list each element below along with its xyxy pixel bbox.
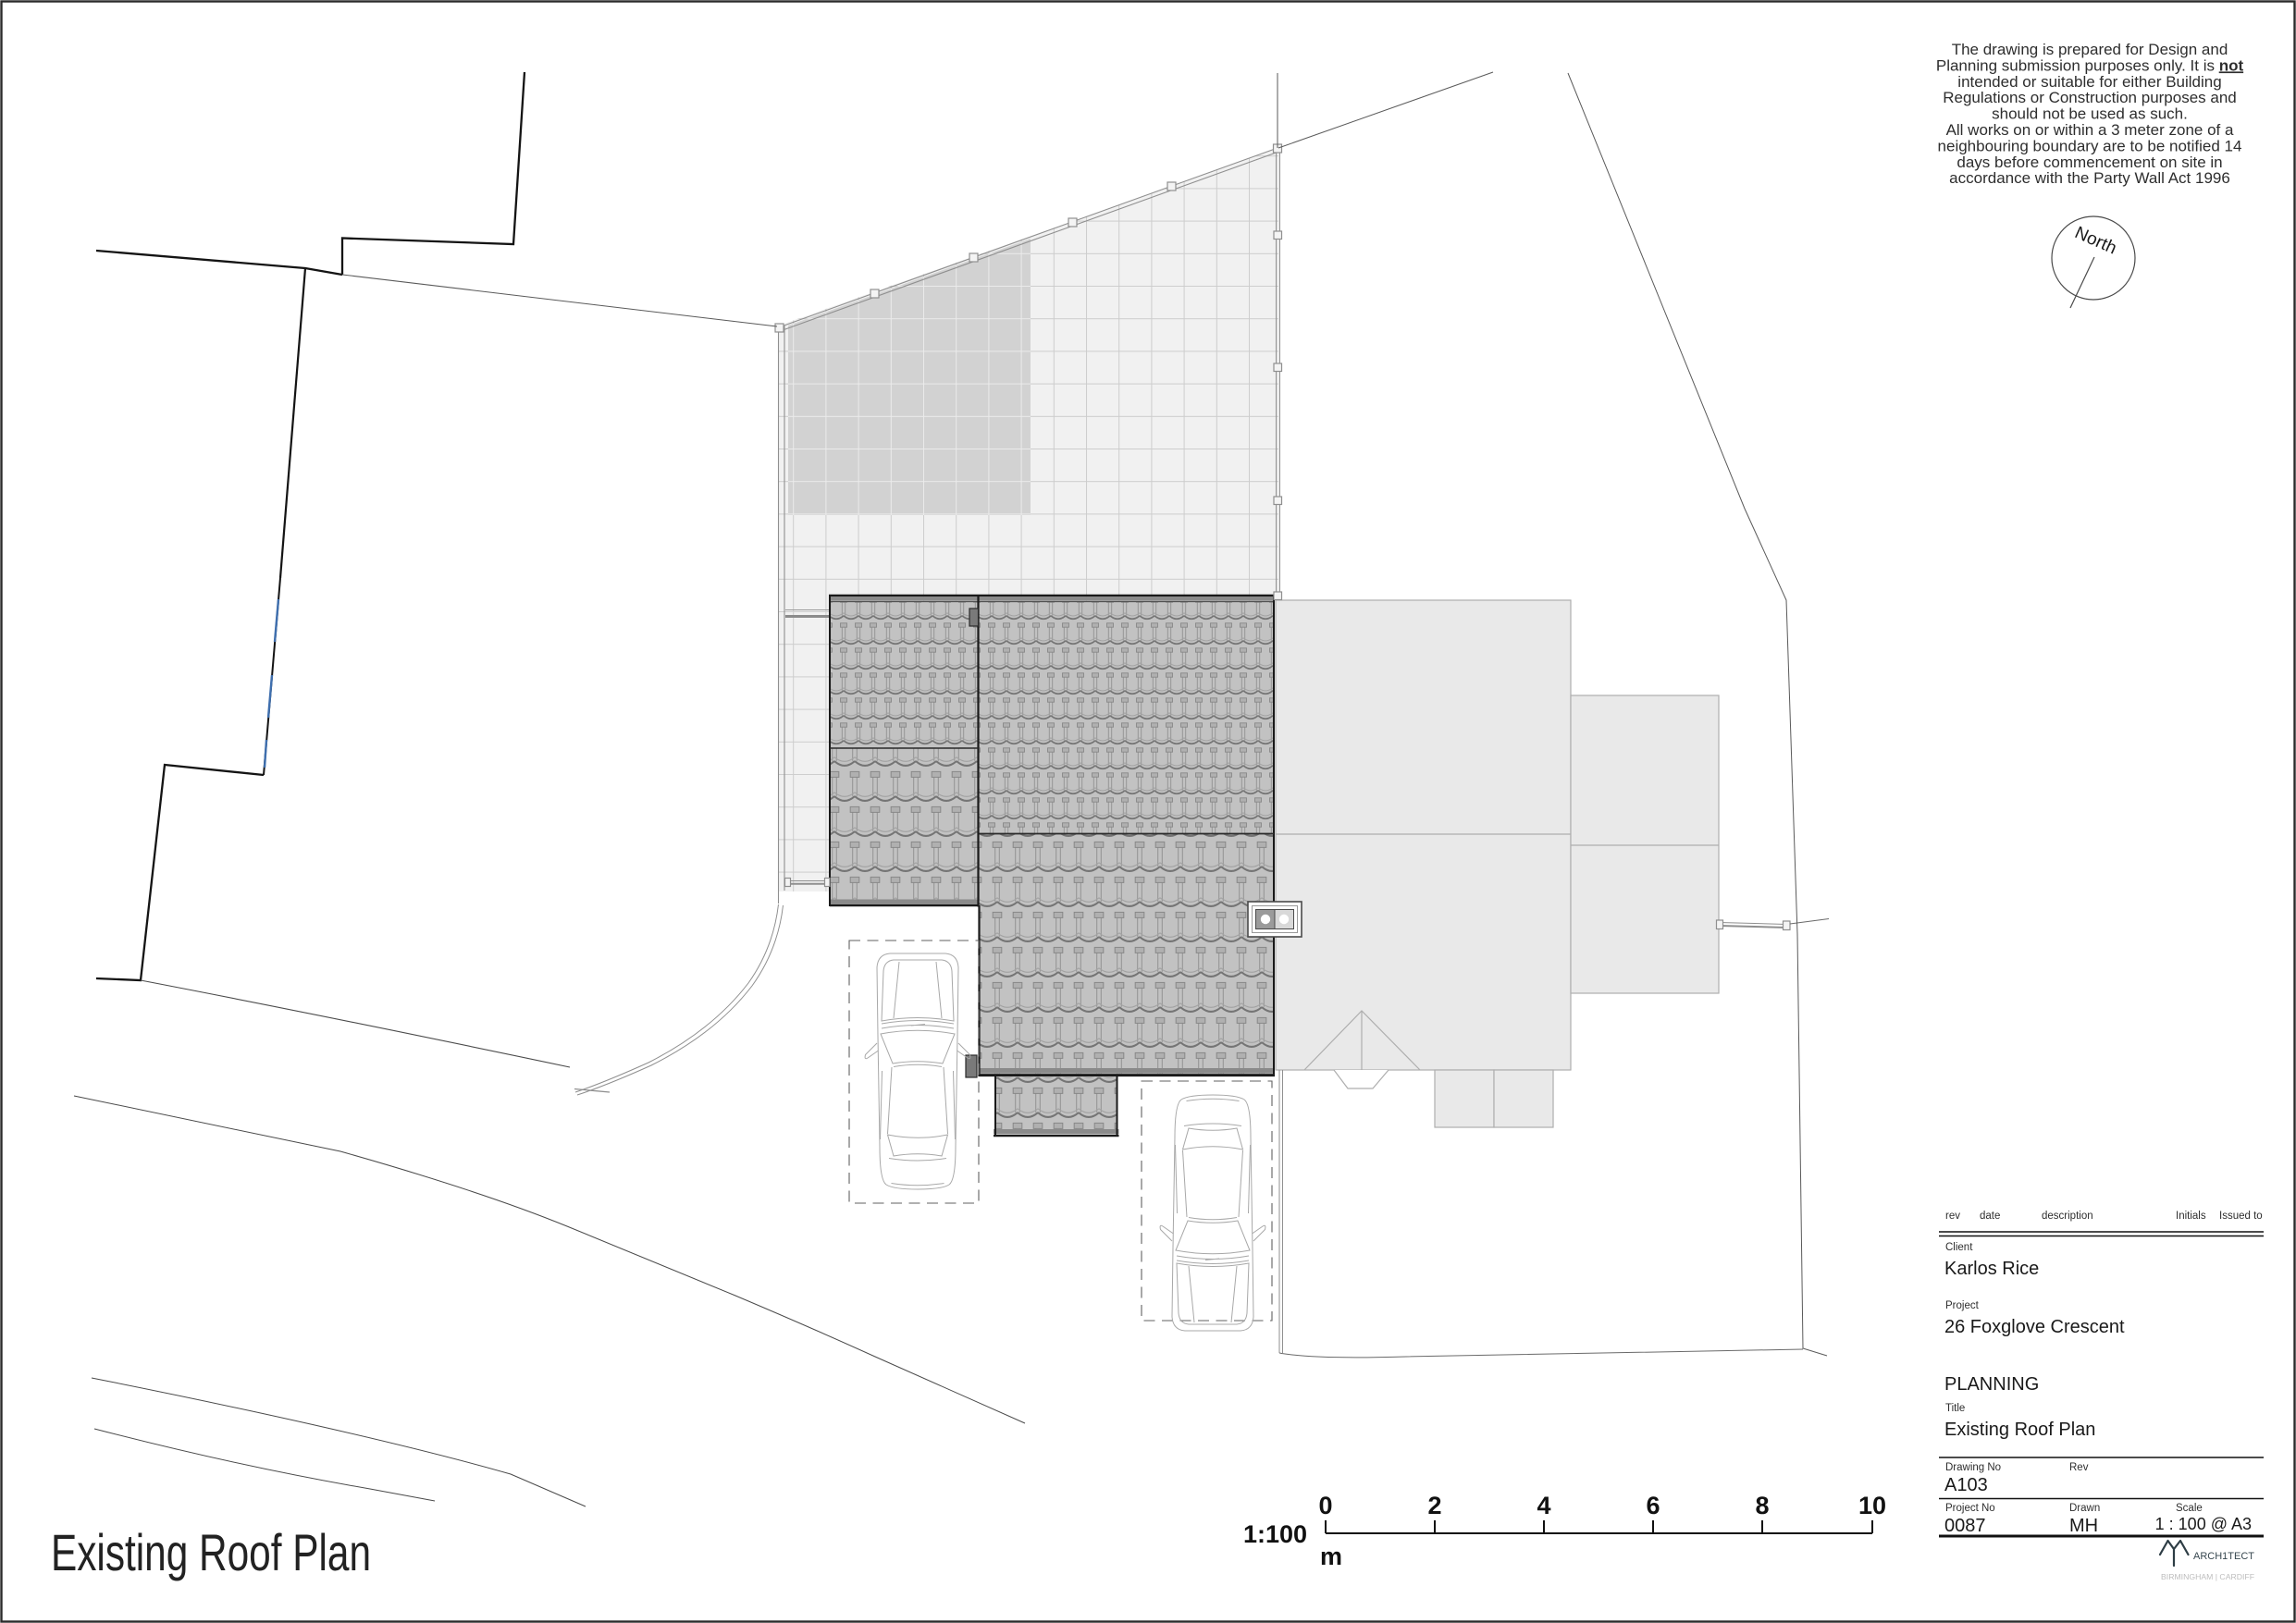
svg-text:Title: Title [1945,1403,1965,1414]
svg-text:Project: Project [1945,1300,1980,1311]
svg-text:ARCH1TECT: ARCH1TECT [2193,1551,2254,1562]
svg-text:BIRMINGHAM | CARDIFF: BIRMINGHAM | CARDIFF [2161,1573,2254,1581]
svg-text:Client: Client [1945,1242,1973,1253]
svg-text:Rev: Rev [2069,1462,2089,1473]
svg-text:m: m [1320,1543,1342,1570]
svg-text:1:100: 1:100 [1243,1520,1307,1548]
svg-text:Existing Roof Plan: Existing Roof Plan [51,1523,371,1581]
svg-text:days before commencement on si: days before commencement on site in [1957,154,2222,171]
svg-text:All works on or within a 3 met: All works on or within a 3 meter zone of… [1946,121,2234,139]
svg-text:6: 6 [1646,1492,1660,1519]
svg-text:Drawn: Drawn [2069,1503,2100,1514]
svg-text:MH: MH [2069,1516,2098,1536]
svg-text:0: 0 [1318,1492,1332,1519]
svg-text:Regulations or Construction pu: Regulations or Construction purposes and [1943,89,2237,106]
svg-text:date: date [1980,1211,2000,1222]
svg-text:Initials: Initials [2176,1211,2206,1222]
svg-text:Planning submission purposes o: Planning submission purposes only. It is… [1936,56,2244,74]
svg-text:Issued to: Issued to [2219,1211,2263,1222]
svg-text:10: 10 [1858,1492,1886,1519]
svg-text:neighbouring boundary are to b: neighbouring boundary are to be notified… [1938,137,2242,154]
svg-text:should not be used as such.: should not be used as such. [1992,105,2188,123]
svg-text:8: 8 [1755,1492,1769,1519]
svg-text:0087: 0087 [1944,1516,1986,1536]
svg-text:rev: rev [1945,1211,1960,1222]
svg-text:Karlos Rice: Karlos Rice [1944,1259,2039,1279]
svg-text:accordance with the Party Wall: accordance with the Party Wall Act 1996 [1949,169,2230,187]
svg-text:26 Foxglove Crescent: 26 Foxglove Crescent [1944,1317,2125,1337]
svg-text:1 : 100 @ A3: 1 : 100 @ A3 [2155,1515,2252,1533]
svg-text:Drawing No: Drawing No [1945,1462,2001,1473]
svg-text:Existing Roof Plan: Existing Roof Plan [1944,1420,2095,1440]
svg-text:description: description [2042,1211,2093,1222]
svg-text:A103: A103 [1944,1475,1988,1495]
svg-text:Project No: Project No [1945,1503,1995,1514]
svg-text:intended or suitable for eithe: intended or suitable for either Building [1957,73,2221,91]
svg-text:Scale: Scale [2176,1503,2203,1514]
svg-text:PLANNING: PLANNING [1944,1374,2039,1395]
svg-text:4: 4 [1537,1492,1550,1519]
svg-text:The drawing is prepared for De: The drawing is prepared for Design and [1952,41,2228,58]
svg-text:2: 2 [1427,1492,1441,1519]
